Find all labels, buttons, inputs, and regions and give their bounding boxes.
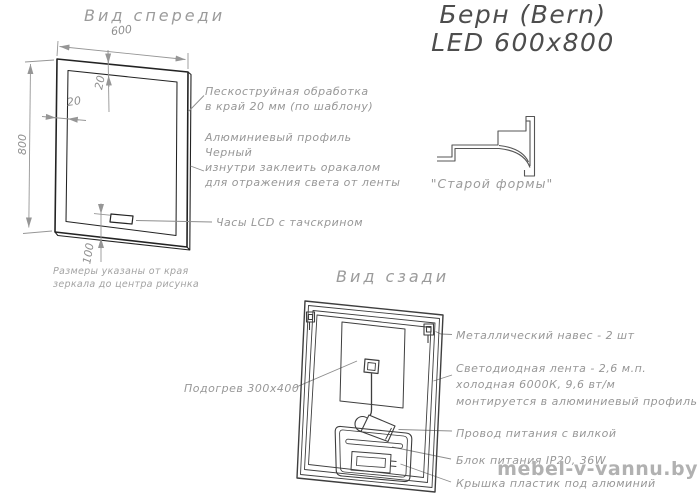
product-title: Берн (Bern) LED 600x800: [413, 1, 633, 57]
sandblast-annotation: Пескоструйная обработка в край 20 мм (по…: [205, 84, 373, 114]
dim-offset-left-20: 20: [66, 94, 82, 109]
front-view-label: Вид спереди: [84, 6, 225, 25]
sandblast-annotation-line1: Пескоструйная обработка: [205, 84, 373, 99]
site-watermark: mebel-v-vannu.by: [497, 458, 698, 480]
hangers-annotation: Металлический навес - 2 шт: [456, 328, 635, 343]
sandblast-annotation-line2: в край 20 мм (по шаблону): [205, 99, 373, 114]
led-annotation-line1: Светодиодная лента - 2,6 м.п.: [456, 361, 697, 377]
heater-annotation: Подогрев 300x400: [184, 381, 299, 396]
technical-drawing-canvas: Берн (Bern) LED 600x800 Вид спереди 600 …: [0, 0, 700, 495]
product-title-line1: Берн (Bern): [413, 1, 633, 29]
back-mirror-drawing: [297, 301, 443, 492]
profile-annotation-line4: для отражения света от ленты: [205, 175, 400, 190]
back-view-label: Вид сзади: [336, 267, 449, 286]
profile-annotation-line3: изнутри заклеить оракалом: [205, 160, 400, 175]
led-annotation-line3: монтируется в алюминиевый профиль: [456, 394, 697, 410]
led-annotation-line2: холодная 6000К, 9,6 вт/м: [456, 377, 697, 393]
clock-annotation: Часы LCD с тачскрином: [216, 215, 363, 230]
dim-width-600: 600: [110, 23, 132, 38]
heater-zone-shape: [340, 322, 405, 408]
profile-cross-section-drawing: [437, 117, 535, 177]
profile-shape-caption: "Старой формы": [428, 176, 556, 191]
aluminium-profile-annotation: Алюминиевый профиль Черный изнутри закле…: [205, 130, 400, 190]
profile-annotation-line2: Черный: [205, 145, 400, 160]
lcd-clock-shape: [110, 214, 133, 224]
dimension-note-line2: зеркала до центра рисунка: [53, 278, 199, 291]
power-cord-annotation: Провод питания с вилкой: [456, 426, 616, 441]
plug-shape: [361, 415, 395, 442]
drawing-linework: [0, 0, 700, 495]
led-strip-annotation: Светодиодная лента - 2,6 м.п. холодная 6…: [456, 361, 697, 410]
dimension-note: Размеры указаны от края зеркала до центр…: [53, 265, 199, 291]
dim-height-800: 800: [16, 134, 29, 155]
profile-annotation-line1: Алюминиевый профиль: [205, 130, 400, 145]
product-title-line2: LED 600x800: [413, 29, 633, 57]
dimension-note-line1: Размеры указаны от края: [53, 265, 199, 278]
